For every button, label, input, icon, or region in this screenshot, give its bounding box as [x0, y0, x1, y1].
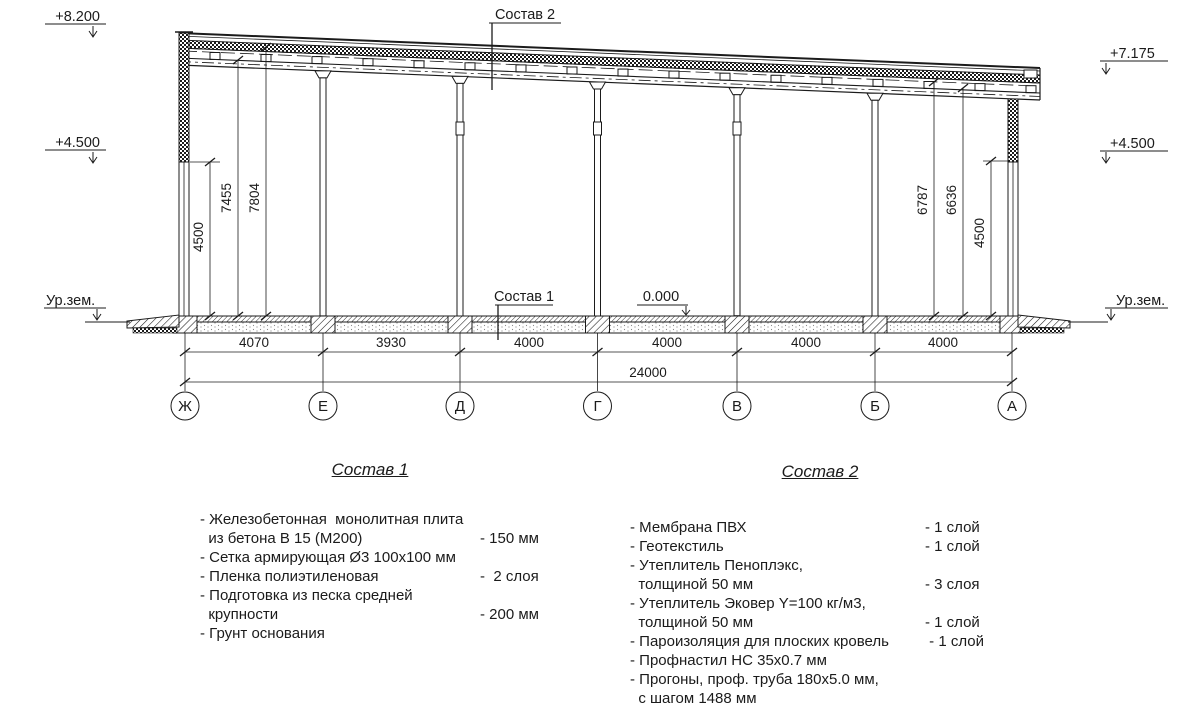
right-wall: [1008, 99, 1018, 316]
bay-dim-3: 4000: [514, 335, 544, 350]
vertical-dimensions-left: [190, 43, 271, 320]
bay-dim-1: 4070: [239, 335, 269, 350]
svg-text:+8.200: +8.200: [55, 9, 100, 25]
svg-text:Состав 1: Состав 1: [494, 289, 554, 305]
bay-dim-texts: 4070 3930 4000 4000 4000 4000 24000: [239, 335, 958, 380]
axis-label: Д: [455, 398, 465, 415]
spec-line: - Прогоны, проф. труба 180х5.0 мм,: [630, 670, 1010, 689]
building-section-sheet: 4500 7455 7804 6787 6636 4500: [0, 0, 1200, 709]
dim-right-6787: 6787: [915, 185, 930, 215]
elevation-right-mid: +4.500: [1100, 136, 1168, 163]
spec-line: толщиной 50 мм- 1 слой: [630, 613, 1010, 632]
spec-line: - Мембрана ПВХ- 1 слой: [630, 518, 1010, 537]
svg-text:+7.175: +7.175: [1110, 46, 1155, 62]
right-apron-base: [1020, 328, 1064, 333]
spec-line: - Сетка армирующая Ø3 100x100 мм: [200, 548, 540, 567]
dim-right-4500: 4500: [972, 218, 987, 248]
spec-line: - Утеплитель Пеноплэкс,: [630, 556, 1010, 575]
svg-text:Ур.зем.: Ур.зем.: [1116, 293, 1165, 309]
spec-line: - Грунт основания: [200, 624, 540, 643]
axis-labels: Ж Е Д Г В Б А: [178, 398, 1017, 415]
left-apron: [127, 315, 179, 328]
axis-label: Е: [318, 398, 328, 415]
spec-line: - Железобетонная монолитная плита: [200, 510, 540, 529]
spec-line: - Утеплитель Эковер Y=100 кг/м3,: [630, 594, 1010, 613]
dim-left-4500: 4500: [191, 222, 206, 252]
vertical-dimensions-right: [929, 78, 1008, 320]
axis-label: Г: [593, 398, 601, 415]
elevation-top-left: +8.200: [45, 9, 106, 37]
floor-slab: [85, 315, 1108, 333]
dim-left-7455: 7455: [219, 183, 234, 213]
spec-line: - Подготовка из песка средней: [200, 586, 540, 605]
spec-line: - Профнастил НС 35х0.7 мм: [630, 651, 1010, 670]
spec1-title: Состав 1: [200, 460, 540, 480]
bottom-dimensions: [180, 333, 1017, 391]
left-apron-base: [133, 328, 177, 333]
spec2-title: Состав 2: [630, 462, 1010, 482]
spec-line: крупности- 200 мм: [200, 605, 540, 624]
axis-label: А: [1007, 398, 1017, 415]
svg-text:Ур.зем.: Ур.зем.: [46, 293, 95, 309]
roof-assembly: [179, 33, 1040, 100]
spec-sostav-2: Состав 2 - Мембрана ПВХ- 1 слой - Геотек…: [630, 462, 1010, 709]
svg-text:+4.500: +4.500: [55, 135, 100, 151]
vertical-dim-texts-left: 4500 7455 7804: [191, 182, 262, 252]
spec-sostav-1: Состав 1 - Железобетонная монолитная пли…: [200, 460, 540, 643]
columns: [315, 71, 883, 317]
right-apron: [1018, 315, 1070, 328]
spec-line: - Пароизоляция для плоских кровель - 1 с…: [630, 632, 1010, 651]
spec2-lines: - Мембрана ПВХ- 1 слой - Геотекстиль- 1 …: [630, 518, 1010, 709]
axis-label: Б: [870, 398, 880, 415]
ground-level-right: Ур.зем.: [1105, 293, 1168, 320]
bay-dim-2: 3930: [376, 335, 406, 350]
zero-level-mark: 0.000: [637, 289, 690, 315]
spec-line: с шагом 1488 мм: [630, 689, 1010, 708]
bay-dim-6: 4000: [928, 335, 958, 350]
overall-dim: 24000: [629, 365, 667, 380]
section-drawing: 4500 7455 7804 6787 6636 4500: [0, 0, 1200, 440]
elevation-left-mid: +4.500: [45, 135, 106, 163]
spec-line: толщиной 50 мм- 3 слоя: [630, 575, 1010, 594]
spec-line: - Пленка полиэтиленовая- 2 слоя: [200, 567, 540, 586]
spec-line: из бетона В 15 (М200)- 150 мм: [200, 529, 540, 548]
axis-label: Ж: [178, 398, 192, 415]
left-wall: [175, 32, 193, 316]
dim-right-6636: 6636: [944, 185, 959, 215]
dim-left-7804: 7804: [247, 182, 262, 213]
spec1-lines: - Железобетонная монолитная плита из бет…: [200, 510, 540, 643]
bay-dim-5: 4000: [791, 335, 821, 350]
svg-text:0.000: 0.000: [643, 289, 679, 305]
bay-dim-4: 4000: [652, 335, 682, 350]
svg-text:Состав 2: Состав 2: [495, 7, 555, 23]
spec-line: - Геотекстиль- 1 слой: [630, 537, 1010, 556]
axis-label: В: [732, 398, 742, 415]
svg-text:+4.500: +4.500: [1110, 136, 1155, 152]
elevation-top-right: +7.175: [1100, 46, 1168, 74]
vertical-dim-texts-right: 6787 6636 4500: [915, 185, 987, 248]
ground-level-left: Ур.зем.: [44, 293, 106, 320]
